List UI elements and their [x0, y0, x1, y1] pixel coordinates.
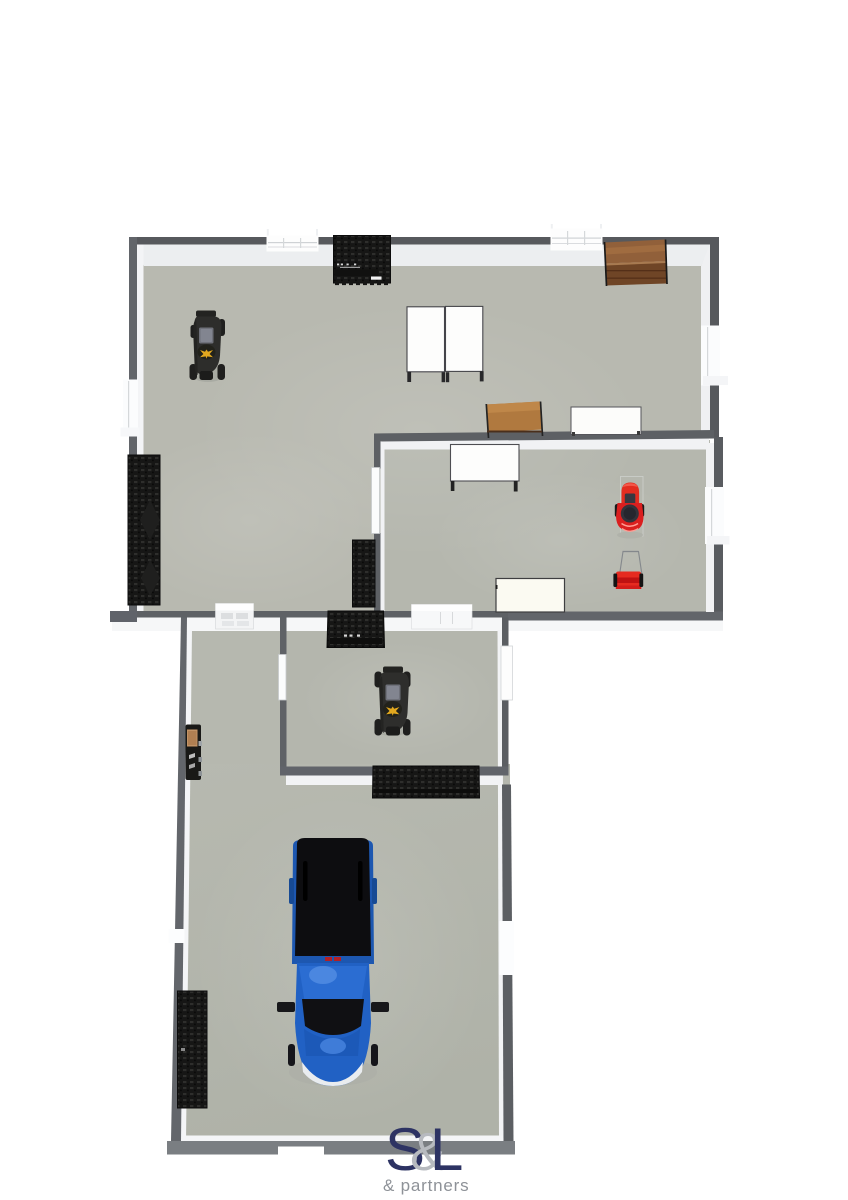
- svg-text:L: L: [430, 1116, 463, 1183]
- svg-text:& partners: & partners: [383, 1176, 469, 1195]
